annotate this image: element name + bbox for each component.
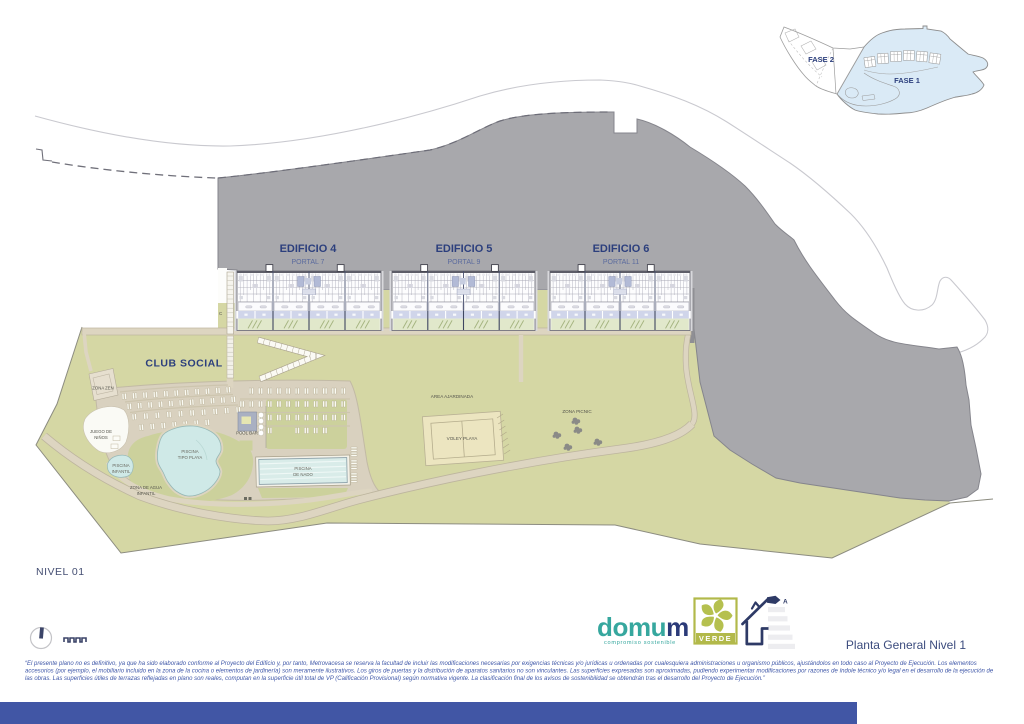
- svg-text:Planta General Nivel 1: Planta General Nivel 1: [846, 638, 966, 652]
- svg-text:ZONA DE AGUA: ZONA DE AGUA: [130, 485, 162, 490]
- svg-text:AREA AJARDINADA: AREA AJARDINADA: [431, 394, 474, 399]
- svg-text:ZONA PICNIC: ZONA PICNIC: [562, 409, 592, 414]
- svg-text:A: A: [783, 599, 788, 606]
- svg-text:PORTAL 9: PORTAL 9: [448, 259, 481, 266]
- svg-text:FASE 2: FASE 2: [808, 55, 834, 64]
- svg-text:EDIFICIO 6: EDIFICIO 6: [593, 243, 650, 255]
- svg-text:VERDE: VERDE: [699, 634, 732, 643]
- svg-text:PISCINA: PISCINA: [181, 449, 198, 454]
- svg-text:JUEGO DE: JUEGO DE: [90, 429, 112, 434]
- svg-text:compromiso sostenible: compromiso sostenible: [604, 640, 676, 646]
- svg-text:accesorios (por ejemplo, el mo: accesorios (por ejemplo, el mobiliario i…: [25, 669, 994, 675]
- svg-text:TIPO PLAYA: TIPO PLAYA: [178, 455, 203, 460]
- svg-text:INFANTIL: INFANTIL: [112, 469, 131, 474]
- svg-text:NIVEL 01: NIVEL 01: [36, 566, 85, 578]
- svg-text:EDIFICIO 4: EDIFICIO 4: [280, 243, 338, 255]
- svg-text:PORTAL 11: PORTAL 11: [603, 259, 639, 266]
- svg-text:“El presente plano no es defin: “El presente plano no es definitivo, ya …: [25, 661, 977, 667]
- svg-text:VOLEY PLAYA: VOLEY PLAYA: [447, 436, 479, 441]
- svg-text:POOL BAR: POOL BAR: [236, 431, 258, 436]
- svg-text:EDIFICIO 5: EDIFICIO 5: [436, 243, 493, 255]
- svg-text:FASE 1: FASE 1: [894, 76, 920, 85]
- svg-text:PISCINA: PISCINA: [294, 466, 311, 471]
- svg-text:PISCINA: PISCINA: [112, 463, 129, 468]
- svg-text:NIÑOS: NIÑOS: [94, 435, 108, 440]
- svg-text:INFANTIL: INFANTIL: [137, 491, 156, 496]
- svg-text:PORTAL 7: PORTAL 7: [292, 259, 325, 266]
- svg-text:domum: domum: [597, 612, 689, 642]
- svg-text:las obras. Las superficies úti: las obras. Las superficies útiles de ter…: [25, 676, 766, 682]
- svg-text:CLUB SOCIAL: CLUB SOCIAL: [145, 358, 222, 370]
- svg-text:ZONA ZEN: ZONA ZEN: [92, 386, 114, 391]
- svg-text:DE NADO: DE NADO: [293, 472, 313, 477]
